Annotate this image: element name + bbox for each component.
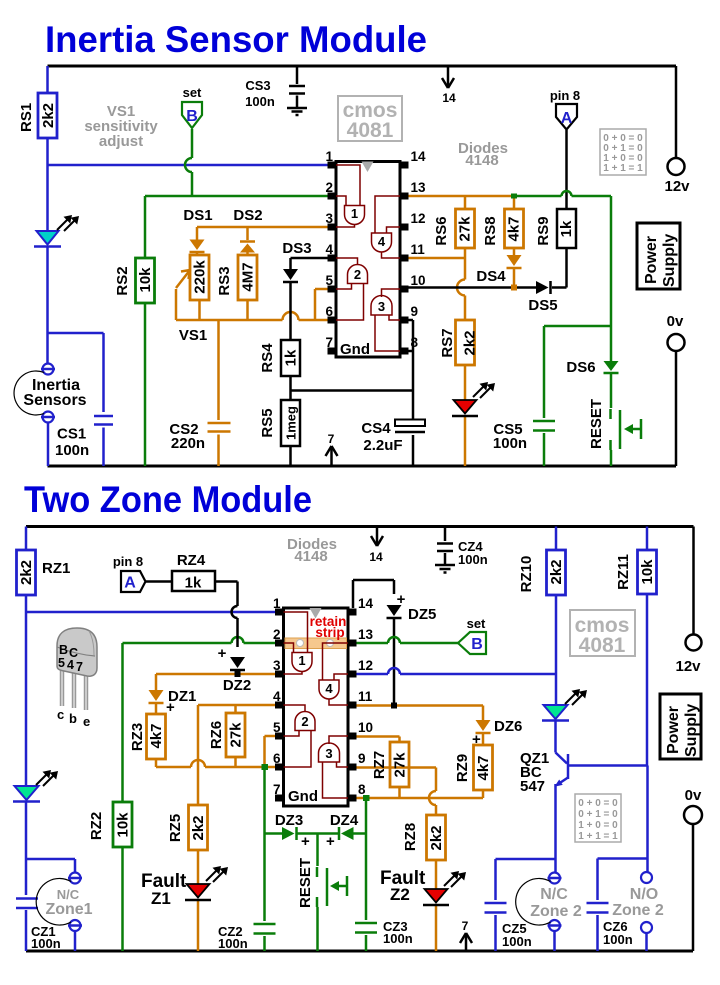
- svg-text:RS3: RS3: [216, 266, 233, 295]
- svg-text:7: 7: [325, 335, 333, 350]
- svg-text:RZ6: RZ6: [208, 721, 225, 749]
- svg-text:27k: 27k: [457, 216, 474, 242]
- svg-text:DZ3: DZ3: [275, 812, 303, 829]
- svg-text:12: 12: [358, 658, 373, 673]
- svg-text:0v: 0v: [685, 787, 702, 804]
- svg-text:4: 4: [273, 689, 281, 704]
- svg-text:5: 5: [325, 273, 333, 288]
- svg-text:N/C: N/C: [57, 887, 80, 902]
- svg-text:RS4: RS4: [259, 343, 276, 373]
- svg-text:e: e: [83, 714, 90, 729]
- svg-text:1 + 1 = 1: 1 + 1 = 1: [578, 831, 618, 842]
- svg-text:0 + 1 = 0: 0 + 1 = 0: [578, 809, 618, 820]
- svg-text:2k2: 2k2: [462, 330, 479, 355]
- svg-text:RZ9: RZ9: [454, 754, 471, 782]
- svg-text:DZ1: DZ1: [168, 688, 196, 705]
- svg-text:+: +: [326, 833, 335, 850]
- svg-text:A: A: [124, 575, 136, 592]
- svg-text:RS6: RS6: [433, 216, 450, 245]
- svg-text:100n: 100n: [603, 932, 633, 947]
- svg-text:Z2: Z2: [390, 885, 410, 904]
- svg-text:13: 13: [358, 627, 374, 642]
- svg-text:RZ11: RZ11: [615, 554, 632, 590]
- svg-text:9: 9: [358, 751, 366, 766]
- svg-text:100n: 100n: [218, 936, 248, 951]
- svg-text:7: 7: [462, 919, 469, 933]
- svg-text:14: 14: [442, 91, 456, 105]
- svg-text:RZ8: RZ8: [402, 823, 419, 851]
- svg-text:4: 4: [67, 658, 74, 672]
- svg-text:+: +: [218, 645, 227, 662]
- svg-text:Zone1: Zone1: [45, 901, 92, 918]
- svg-text:DS3: DS3: [282, 240, 311, 257]
- svg-text:2k2: 2k2: [18, 560, 35, 585]
- svg-text:4081: 4081: [579, 634, 626, 657]
- svg-text:set: set: [183, 85, 202, 100]
- svg-text:4k7: 4k7: [148, 723, 165, 748]
- svg-text:RS5: RS5: [259, 408, 276, 437]
- svg-text:4148: 4148: [465, 152, 498, 169]
- svg-text:4148: 4148: [294, 548, 327, 565]
- svg-text:2k2: 2k2: [428, 825, 445, 850]
- svg-text:Supply: Supply: [683, 704, 700, 757]
- svg-text:RESET: RESET: [297, 858, 314, 908]
- svg-text:2: 2: [354, 267, 361, 282]
- svg-text:8: 8: [411, 335, 419, 350]
- svg-text:4: 4: [378, 234, 386, 249]
- svg-text:DS2: DS2: [233, 207, 262, 224]
- svg-text:3: 3: [325, 211, 333, 226]
- svg-text:3: 3: [378, 299, 385, 314]
- svg-text:Gnd: Gnd: [288, 788, 318, 805]
- svg-text:10k: 10k: [115, 812, 132, 838]
- svg-text:1: 1: [351, 206, 358, 221]
- svg-text:B: B: [471, 636, 483, 653]
- svg-text:7: 7: [328, 432, 335, 446]
- svg-text:+: +: [472, 731, 481, 748]
- svg-text:A: A: [561, 110, 573, 127]
- svg-text:1k: 1k: [185, 575, 202, 592]
- svg-text:B: B: [59, 643, 68, 657]
- svg-text:Power: Power: [643, 236, 660, 284]
- svg-text:4: 4: [325, 242, 333, 257]
- svg-text:DS5: DS5: [528, 297, 557, 314]
- svg-text:100n: 100n: [245, 94, 275, 109]
- svg-text:220n: 220n: [171, 435, 205, 452]
- svg-text:10: 10: [358, 720, 373, 735]
- svg-text:pin 8: pin 8: [550, 88, 580, 103]
- svg-text:14: 14: [411, 149, 427, 164]
- svg-text:RS8: RS8: [482, 216, 499, 245]
- svg-text:5: 5: [58, 656, 65, 670]
- svg-text:RZ2: RZ2: [88, 812, 105, 840]
- svg-text:12v: 12v: [675, 658, 701, 675]
- svg-text:10k: 10k: [137, 267, 154, 293]
- svg-text:2k2: 2k2: [40, 103, 57, 128]
- svg-text:RS2: RS2: [114, 266, 131, 295]
- svg-text:3: 3: [325, 746, 332, 761]
- svg-text:set: set: [467, 616, 486, 631]
- svg-text:1 + 1 = 1: 1 + 1 = 1: [603, 163, 643, 174]
- svg-text:7: 7: [273, 782, 281, 797]
- svg-text:Sensors: Sensors: [23, 392, 86, 409]
- svg-text:adjust: adjust: [99, 133, 143, 150]
- svg-text:12: 12: [411, 211, 426, 226]
- svg-text:14: 14: [358, 596, 374, 611]
- svg-text:pin 8: pin 8: [113, 554, 143, 569]
- svg-text:c: c: [57, 707, 64, 722]
- svg-text:Gnd: Gnd: [340, 341, 370, 358]
- svg-text:13: 13: [411, 180, 427, 195]
- svg-text:Zone 2: Zone 2: [612, 902, 664, 919]
- svg-text:9: 9: [411, 304, 419, 319]
- svg-text:N/O: N/O: [630, 886, 658, 903]
- svg-text:5: 5: [273, 720, 281, 735]
- svg-text:RZ3: RZ3: [129, 723, 146, 751]
- svg-text:DZ4: DZ4: [330, 812, 359, 829]
- svg-text:strip: strip: [315, 625, 344, 640]
- svg-text:CS4: CS4: [361, 420, 391, 437]
- svg-text:2k2: 2k2: [548, 559, 565, 584]
- svg-text:DS1: DS1: [183, 207, 212, 224]
- svg-text:0 + 0 = 0: 0 + 0 = 0: [578, 798, 618, 809]
- svg-text:6: 6: [273, 751, 281, 766]
- svg-text:12v: 12v: [664, 178, 690, 195]
- svg-text:RS9: RS9: [535, 216, 552, 245]
- svg-text:4: 4: [325, 681, 333, 696]
- svg-text:RS7: RS7: [439, 328, 456, 357]
- svg-text:b: b: [69, 711, 77, 726]
- svg-text:RZ4: RZ4: [177, 552, 206, 569]
- svg-text:1 + 0 = 0: 1 + 0 = 0: [578, 820, 618, 831]
- svg-text:CS1: CS1: [57, 426, 86, 443]
- svg-text:14: 14: [369, 550, 383, 564]
- svg-text:11: 11: [358, 689, 373, 704]
- svg-text:Z1: Z1: [151, 889, 171, 908]
- svg-text:DZ2: DZ2: [223, 677, 251, 694]
- svg-text:100n: 100n: [31, 936, 61, 951]
- svg-text:4k7: 4k7: [475, 755, 492, 780]
- svg-text:Power: Power: [665, 706, 682, 754]
- svg-text:2.2uF: 2.2uF: [363, 437, 402, 454]
- svg-text:27k: 27k: [392, 752, 409, 778]
- svg-text:10: 10: [411, 273, 426, 288]
- svg-text:RZ1: RZ1: [42, 560, 70, 577]
- svg-text:1k: 1k: [558, 220, 575, 237]
- svg-text:27k: 27k: [228, 722, 245, 748]
- svg-text:RS1: RS1: [18, 103, 35, 132]
- svg-text:220k: 220k: [192, 260, 209, 294]
- svg-text:4081: 4081: [347, 119, 394, 142]
- svg-text:8: 8: [358, 782, 366, 797]
- svg-text:0v: 0v: [667, 313, 684, 330]
- svg-text:B: B: [186, 108, 198, 125]
- svg-text:DZ5: DZ5: [408, 606, 436, 623]
- svg-text:1meg: 1meg: [284, 406, 299, 440]
- svg-text:RESET: RESET: [588, 399, 605, 449]
- svg-text:RZ10: RZ10: [518, 556, 535, 593]
- svg-text:DS4: DS4: [476, 268, 506, 285]
- svg-text:Supply: Supply: [661, 234, 678, 287]
- svg-text:4k7: 4k7: [506, 216, 523, 241]
- svg-text:100n: 100n: [502, 934, 532, 949]
- svg-text:Two Zone Module: Two Zone Module: [24, 479, 312, 520]
- svg-text:Inertia Sensor Module: Inertia Sensor Module: [45, 19, 427, 60]
- svg-text:DZ6: DZ6: [494, 718, 522, 735]
- svg-text:2: 2: [273, 627, 281, 642]
- svg-text:1: 1: [325, 149, 333, 164]
- svg-text:100n: 100n: [55, 442, 89, 459]
- svg-text:1k: 1k: [283, 349, 300, 366]
- svg-text:6: 6: [325, 304, 333, 319]
- svg-text:100n: 100n: [458, 552, 488, 567]
- svg-text:DS6: DS6: [566, 359, 595, 376]
- svg-text:547: 547: [520, 778, 545, 795]
- svg-text:3: 3: [273, 658, 281, 673]
- svg-text:100n: 100n: [493, 435, 527, 452]
- svg-text:2k2: 2k2: [190, 815, 207, 840]
- svg-text:RZ7: RZ7: [371, 751, 388, 779]
- svg-text:CS3: CS3: [245, 78, 270, 93]
- svg-text:2: 2: [325, 180, 333, 195]
- svg-text:VS1: VS1: [179, 327, 207, 344]
- svg-text:10k: 10k: [639, 559, 656, 585]
- svg-text:1: 1: [298, 653, 305, 668]
- svg-text:1: 1: [273, 596, 281, 611]
- svg-text:N/C: N/C: [540, 886, 568, 903]
- svg-text:Zone 2: Zone 2: [530, 903, 582, 920]
- svg-text:11: 11: [411, 242, 426, 257]
- svg-text:2: 2: [301, 714, 308, 729]
- svg-text:7: 7: [76, 660, 83, 674]
- svg-text:+: +: [301, 833, 310, 850]
- svg-text:4M7: 4M7: [240, 262, 257, 291]
- svg-text:RZ5: RZ5: [167, 814, 184, 842]
- svg-text:100n: 100n: [383, 931, 413, 946]
